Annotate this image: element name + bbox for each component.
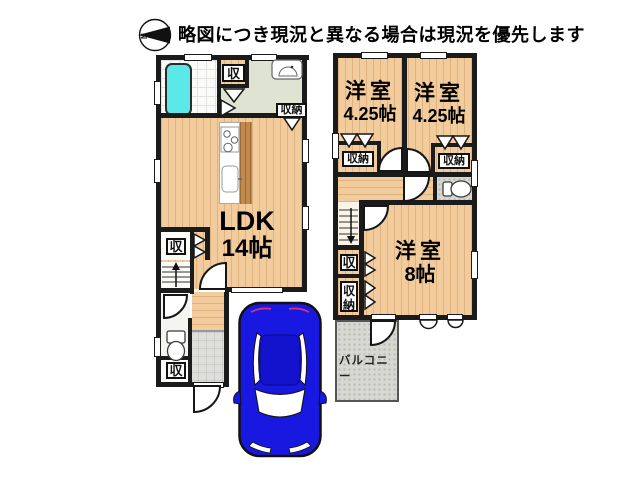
window <box>154 159 161 183</box>
car-mirror <box>319 391 326 404</box>
entrance-step-edge <box>192 330 225 332</box>
room-left-label: 洋室 4.25帖 <box>339 80 401 124</box>
ldk-room-label: LDK 14帖 <box>198 206 296 263</box>
room-name: 洋室 <box>392 240 448 264</box>
kitchen-counter <box>219 122 240 204</box>
window <box>302 206 309 230</box>
wall-segment <box>431 143 472 147</box>
wall-segment <box>190 232 194 294</box>
car-roof <box>260 335 300 385</box>
closet-label: 収 <box>340 254 358 271</box>
room-main-label: 洋室 8帖 <box>392 240 448 286</box>
room-size: 8帖 <box>392 264 448 286</box>
compass-svg: N <box>137 17 173 53</box>
hallway-1f-floor <box>192 292 225 332</box>
wall-segment <box>156 55 309 60</box>
window <box>154 81 161 105</box>
window <box>231 287 283 293</box>
storage-label-vertical: 収納 <box>340 281 358 312</box>
hallway-2f-floor <box>338 177 433 202</box>
window <box>332 133 339 159</box>
closet-label: 収 <box>222 64 245 82</box>
car-tail-lights <box>251 308 309 312</box>
window <box>471 251 478 279</box>
entrance-floor <box>190 332 225 382</box>
stairs-1f-floor <box>161 262 192 288</box>
room-name: 洋室 <box>407 82 471 106</box>
wall-segment <box>377 141 381 176</box>
room-name: LDK <box>198 206 296 236</box>
car-body <box>240 303 321 456</box>
wall-segment <box>224 292 229 387</box>
car-side-window <box>299 333 307 385</box>
window <box>361 52 388 59</box>
compass-north-label: N <box>140 33 149 39</box>
kitchen-counter-side <box>240 122 252 204</box>
wall-segment <box>245 57 249 87</box>
toilet-1f-floor <box>161 294 190 356</box>
wall-segment <box>302 55 307 292</box>
entry-door-opening <box>193 382 224 388</box>
wall-segment <box>338 274 359 278</box>
wall-segment <box>217 84 249 88</box>
wall-segment <box>359 247 364 315</box>
room-right-label: 洋室 4.25帖 <box>407 82 471 126</box>
storage-label: 収納 <box>276 103 307 118</box>
window <box>471 160 478 187</box>
awning-window-marks <box>420 320 463 329</box>
disclaimer-text: 略図につき現況と異なる場合は現況を優先します <box>178 21 585 47</box>
car-headlight <box>249 442 271 453</box>
wall-segment <box>188 318 192 382</box>
balcony-door-opening <box>371 314 396 320</box>
bathtub <box>165 63 192 116</box>
wall-segment <box>359 200 364 247</box>
balcony-label: バルコニー <box>339 352 397 384</box>
room-size: 14帖 <box>198 236 296 263</box>
wall-segment <box>433 177 437 202</box>
closet-label: 収 <box>166 362 186 379</box>
wall-segment <box>333 53 338 320</box>
window <box>184 54 212 61</box>
floorplan-canvas: N 略図につき現況と異なる場合は現況を優先します <box>0 0 640 480</box>
window <box>251 54 277 61</box>
wall-segment <box>338 245 359 250</box>
window <box>154 337 161 357</box>
room-name: 洋室 <box>339 80 401 104</box>
wall-segment <box>156 356 190 360</box>
car-windshield <box>255 389 305 417</box>
car-side-window <box>253 333 261 385</box>
wall-segment <box>359 200 477 205</box>
window <box>302 139 309 163</box>
wall-segment <box>338 172 472 177</box>
room-size: 4.25帖 <box>339 104 401 124</box>
car-mirror <box>234 391 241 404</box>
wall-segment <box>431 143 435 176</box>
wall-segment <box>338 141 377 145</box>
storage-label: 収納 <box>342 151 374 167</box>
door-arc-entry <box>194 386 220 412</box>
window <box>419 314 437 320</box>
stairs-2f-floor <box>338 202 359 247</box>
window <box>420 52 447 59</box>
closet-label: 収 <box>166 238 186 255</box>
car <box>234 303 327 456</box>
plan-symbols <box>0 0 640 480</box>
toilet-2f-floor <box>437 177 472 202</box>
compass-icon: N <box>137 17 173 53</box>
storage-label: 収納 <box>438 153 470 169</box>
car-headlight <box>289 442 311 453</box>
wall-segment <box>156 288 194 293</box>
window <box>447 314 463 320</box>
room-size: 4.25帖 <box>407 106 471 126</box>
